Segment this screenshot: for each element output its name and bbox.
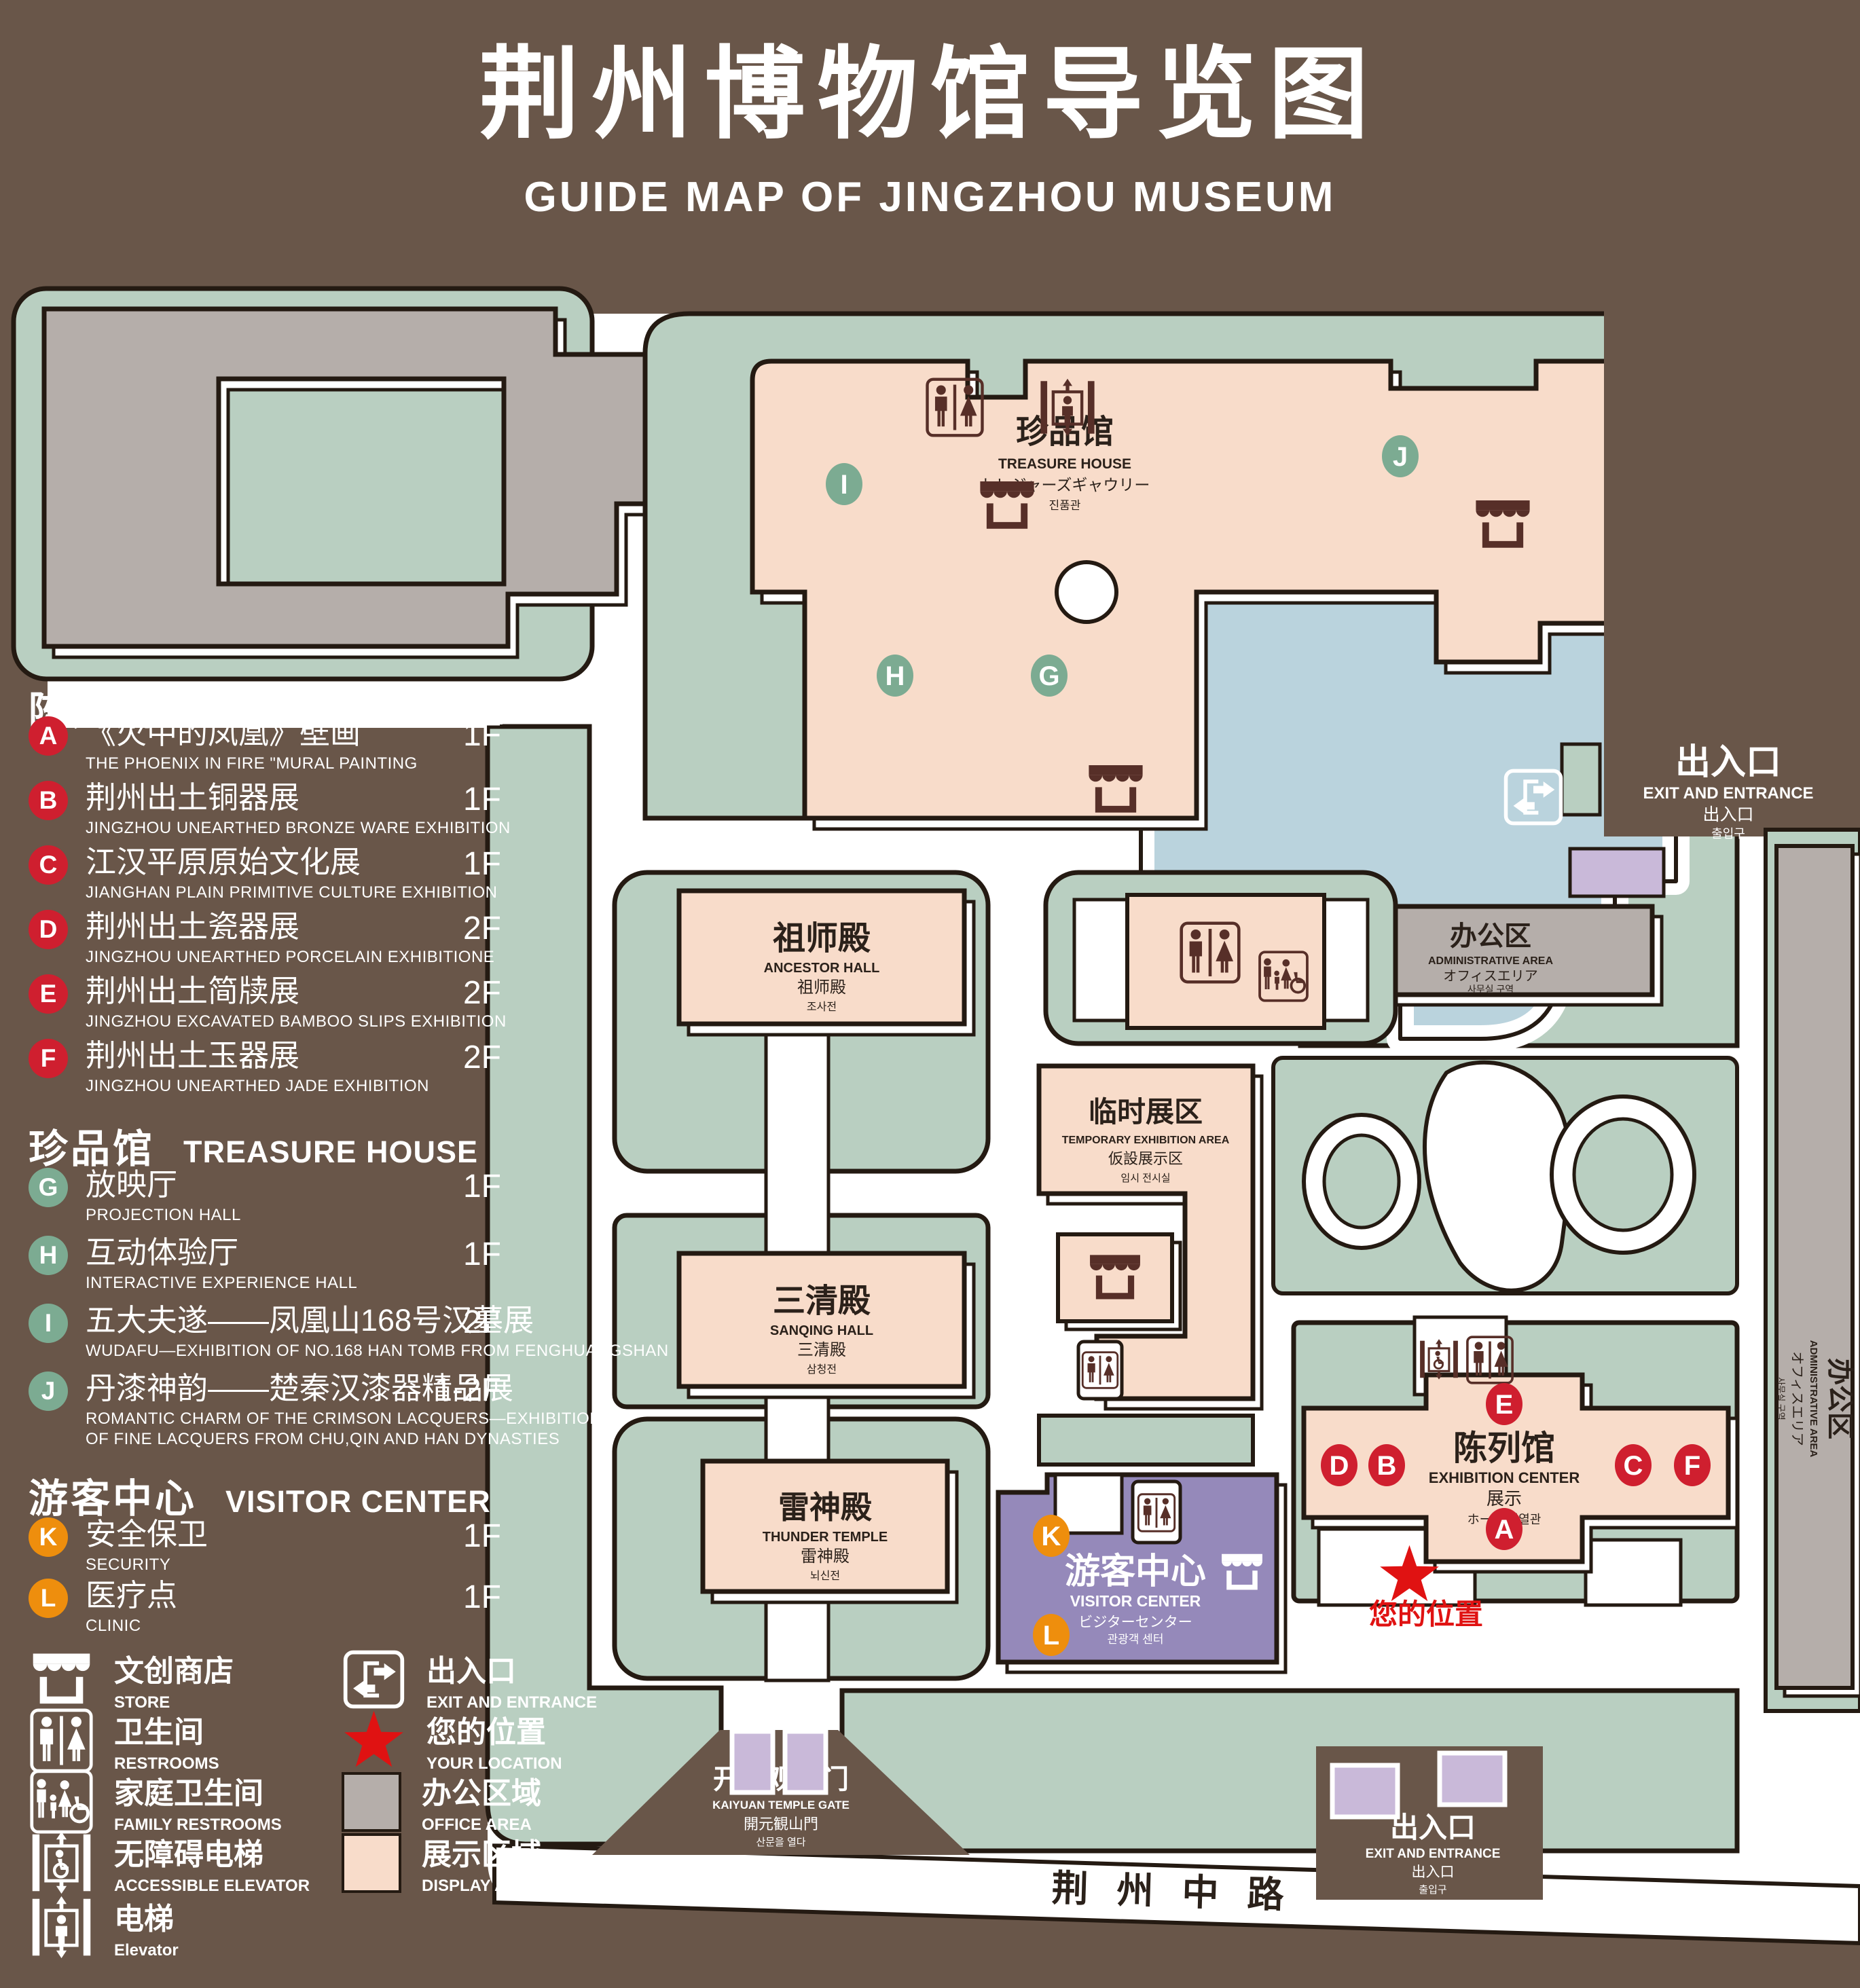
- item-title: 丹漆神韵——楚秦汉漆器精品展: [86, 1372, 432, 1405]
- legend-header-visitor: 游客中心 VISITOR CENTER: [29, 1467, 491, 1524]
- svg-text:산문을 열다: 산문을 열다: [756, 1837, 805, 1848]
- admin-mid-label-kr: 사무실 구역: [1467, 984, 1514, 995]
- exit-top-label-kr: 출입구: [1711, 827, 1745, 841]
- ancestor-hall: 祖师殿 ANCESTOR HALL 祖师殿 조사전: [679, 891, 974, 1035]
- restroom-pavilion: [1046, 872, 1396, 1044]
- item-title: 医疗点: [86, 1579, 432, 1613]
- display-area-swatch: [342, 1833, 401, 1893]
- symbol-label: 卫生间: [114, 1708, 219, 1751]
- legend-symbol-your-location: 您的位置 YOUR LOCATION: [342, 1708, 562, 1773]
- item-caption: JINGZHOU UNEARTHED JADE EXHIBITION: [86, 1077, 432, 1096]
- exit-top-label-zh: 出入口: [1675, 743, 1781, 782]
- svg-text:뇌신전: 뇌신전: [810, 1570, 840, 1582]
- exit-icon: [342, 1647, 406, 1712]
- legend-item-B: B 荆州出土铜器展 JINGZHOU UNEARTHED BRONZE WARE…: [29, 781, 513, 838]
- marker-D: D: [1321, 1444, 1357, 1486]
- legend-header-en: TREASURE HOUSE: [183, 1135, 478, 1170]
- exit-top-label-en: EXIT AND ENTRANCE: [1643, 784, 1813, 803]
- legend-header-treasure: 珍品馆 TREASURE HOUSE: [29, 1117, 478, 1174]
- item-caption: INTERACTIVE EXPERIENCE HALL: [86, 1274, 432, 1293]
- south-green-band: [842, 1691, 1737, 1851]
- marker-badge: I: [29, 1304, 68, 1343]
- svg-text:G: G: [1038, 661, 1059, 691]
- legend-item-J: J 丹漆神韵——楚秦汉漆器精品展 ROMANTIC CHARM OF THE C…: [29, 1372, 513, 1449]
- legend-item-G: G 放映厅 PROJECTION HALL 1F: [29, 1168, 513, 1225]
- svg-text:THUNDER TEMPLE: THUNDER TEMPLE: [763, 1530, 888, 1545]
- legend-symbol-elevator: 电梯 Elevator: [29, 1894, 179, 1960]
- symbol-label: 办公区域: [422, 1769, 541, 1812]
- legend-symbol-family-restrooms: 家庭卫生间 FAMILY RESTROOMS: [29, 1769, 282, 1835]
- item-title: 放映厅: [86, 1168, 432, 1202]
- marker-H: H: [877, 655, 913, 697]
- svg-text:임시 전시실: 임시 전시실: [1120, 1173, 1170, 1184]
- svg-text:祖师殿: 祖师殿: [797, 978, 846, 997]
- legend-symbol-store: 文创商店 STORE: [29, 1646, 234, 1712]
- legend-item-D: D 荆州出土瓷器展 JINGZHOU UNEARTHED PORCELAIN E…: [29, 910, 513, 967]
- item-caption: CLINIC: [86, 1617, 432, 1636]
- svg-text:TEMPORARY EXHIBITION AREA: TEMPORARY EXHIBITION AREA: [1062, 1135, 1230, 1146]
- item-floor: 2F: [463, 1304, 501, 1341]
- svg-text:開元観山門: 開元観山門: [744, 1816, 818, 1833]
- accessible-elevator-icon: [29, 1830, 94, 1895]
- symbol-label: 无障碍电梯: [114, 1830, 310, 1873]
- exit-bottom-gate: [1332, 1765, 1398, 1817]
- svg-text:出入口: 出入口: [1390, 1811, 1476, 1843]
- svg-text:ADMINISTRATIVE AREA: ADMINISTRATIVE AREA: [1808, 1340, 1819, 1458]
- item-floor: 1F: [463, 716, 501, 754]
- item-title: 五大夫遂——凤凰山168号汉墓展: [86, 1304, 432, 1338]
- svg-text:三清殿: 三清殿: [773, 1283, 871, 1319]
- guide-map-sign: 荆州博物馆导览图 GUIDE MAP OF JINGZHOU MUSEUM: [0, 0, 1860, 1988]
- item-caption: THE PHOENIX IN FIRE "MURAL PAINTING: [86, 754, 432, 773]
- store-icon: [29, 1647, 94, 1712]
- marker-L: L: [1033, 1614, 1070, 1656]
- visitor-center: 游客中心 VISITOR CENTER ビジターセンター 관광객 센터 K L: [998, 1475, 1285, 1672]
- exit-top-label-jp: 出入口: [1702, 805, 1753, 824]
- legend-item-A: A 《火中的凤凰》壁画 THE PHOENIX IN FIRE "MURAL P…: [29, 716, 513, 773]
- marker-badge: B: [29, 781, 68, 820]
- svg-text:F: F: [1684, 1451, 1700, 1481]
- symbol-caption: Elevator: [114, 1941, 179, 1960]
- svg-text:VISITOR CENTER: VISITOR CENTER: [1070, 1592, 1201, 1610]
- item-title: 荆州出土玉器展: [86, 1039, 432, 1073]
- marker-J: J: [1382, 435, 1419, 477]
- legend-item-K: K 安全保卫 SECURITY 1F: [29, 1517, 513, 1575]
- item-floor: 1F: [463, 1579, 501, 1616]
- svg-text:E: E: [1495, 1390, 1514, 1420]
- svg-text:游客中心: 游客中心: [1065, 1552, 1206, 1591]
- item-caption: WUDAFU—EXHIBITION OF NO.168 HAN TOMB FRO…: [86, 1342, 432, 1361]
- symbol-caption: ACCESSIBLE ELEVATOR: [114, 1877, 310, 1896]
- item-caption: PROJECTION HALL: [86, 1206, 432, 1225]
- legend-header-zh: 珍品馆: [29, 1117, 155, 1174]
- svg-text:ビジターセンター: ビジターセンター: [1078, 1615, 1192, 1630]
- gate-pillar: [732, 1731, 773, 1792]
- elevator-icon: [29, 1895, 94, 1959]
- item-floor: 1F: [463, 1236, 501, 1273]
- item-floor: 1F: [463, 781, 501, 818]
- svg-text:荆州中路: 荆州中路: [1051, 1868, 1313, 1916]
- legend-symbol-accessible-elevator: 无障碍电梯 ACCESSIBLE ELEVATOR: [29, 1830, 310, 1896]
- item-floor: 1F: [463, 1517, 501, 1555]
- exhibition-center: 陈列馆 EXHIBITION CENTER 展示 ホール 진열관 E D B C…: [1294, 1317, 1737, 1630]
- temporary-green: [1039, 1416, 1253, 1465]
- svg-text:展示: 展示: [1487, 1488, 1522, 1509]
- legend: 陈列馆 EXHIBITION CENTER A 《火中的凤凰》壁画 THE PH…: [19, 676, 523, 1986]
- svg-text:EXIT AND ENTRANCE: EXIT AND ENTRANCE: [1366, 1847, 1501, 1861]
- item-floor: 2F: [463, 1039, 501, 1076]
- svg-text:オフィスエリア: オフィスエリア: [1789, 1351, 1804, 1446]
- admin-mid-label-en: ADMINISTRATIVE AREA: [1428, 955, 1553, 967]
- svg-text:K: K: [1042, 1522, 1061, 1551]
- legend-item-E: E 荆州出土简牍展 JINGZHOU EXCAVATED BAMBOO SLIP…: [29, 974, 513, 1031]
- admin-right-building: [1776, 846, 1853, 1688]
- location-star-icon: [342, 1708, 406, 1773]
- marker-badge: F: [29, 1039, 68, 1078]
- item-caption: SECURITY: [86, 1556, 432, 1575]
- exit-bottom-gate: [1440, 1753, 1505, 1805]
- legend-symbol-office-area: 办公区域 OFFICE AREA: [342, 1769, 541, 1835]
- marker-badge: J: [29, 1372, 68, 1411]
- office-area-swatch: [342, 1772, 401, 1832]
- item-caption: JIANGHAN PLAIN PRIMITIVE CULTURE EXHIBIT…: [86, 883, 432, 902]
- treasure-label-en: TREASURE HOUSE: [998, 456, 1131, 472]
- legend-item-F: F 荆州出土玉器展 JINGZHOU UNEARTHED JADE EXHIBI…: [29, 1039, 513, 1096]
- symbol-label: 您的位置: [426, 1708, 562, 1751]
- marker-badge: A: [29, 716, 68, 756]
- svg-text:陈列馆: 陈列馆: [1453, 1429, 1555, 1467]
- symbol-label: 出入口: [426, 1646, 597, 1690]
- svg-text:办公区: 办公区: [1825, 1358, 1855, 1439]
- symbol-label: 展示区域: [422, 1830, 541, 1873]
- marker-E: E: [1486, 1383, 1522, 1425]
- legend-header-en: VISITOR CENTER: [225, 1484, 491, 1520]
- marker-badge: L: [29, 1579, 68, 1618]
- family-restrooms-icon: [29, 1769, 94, 1834]
- legend-symbol-exit: 出入口 EXIT AND ENTRANCE: [342, 1646, 597, 1712]
- sanqing-hall: 三清殿 SANQING HALL 三清殿 삼청전: [679, 1253, 974, 1397]
- symbol-label: 家庭卫生间: [114, 1769, 282, 1812]
- legend-item-I: I 五大夫遂——凤凰山168号汉墓展 WUDAFU—EXHIBITION OF …: [29, 1304, 513, 1361]
- marker-C: C: [1615, 1444, 1652, 1486]
- marker-badge: C: [29, 845, 68, 885]
- item-floor: 2F: [463, 974, 501, 1012]
- marker-B: B: [1368, 1444, 1405, 1486]
- garden-island-left: [1324, 1135, 1399, 1228]
- svg-text:삼청전: 삼청전: [807, 1363, 837, 1376]
- garden-island-right: [1574, 1119, 1672, 1230]
- item-caption-line2: OF FINE LACQUERS FROM CHU,QIN AND HAN DY…: [86, 1430, 432, 1449]
- item-title: 江汉平原原始文化展: [86, 845, 432, 879]
- item-caption: JINGZHOU UNEARTHED PORCELAIN EXHIBITIONE: [86, 948, 432, 967]
- treasure-label-kr: 진품관: [1049, 499, 1081, 512]
- legend-item-L: L 医疗点 CLINIC 1F: [29, 1579, 513, 1636]
- item-title: 《火中的凤凰》壁画: [86, 716, 432, 750]
- svg-text:KAIYUAN TEMPLE GATE: KAIYUAN TEMPLE GATE: [712, 1799, 850, 1811]
- svg-text:C: C: [1624, 1451, 1643, 1481]
- item-caption: JINGZHOU EXCAVATED BAMBOO SLIPS EXHIBITI…: [86, 1012, 432, 1031]
- marker-badge: D: [29, 910, 68, 949]
- symbol-caption: DISPLAY AREA: [422, 1877, 541, 1896]
- item-floor: 1F: [463, 845, 501, 883]
- svg-text:仮設展示区: 仮設展示区: [1108, 1150, 1183, 1167]
- item-floor: 1F: [463, 1168, 501, 1205]
- svg-text:I: I: [840, 470, 847, 500]
- svg-text:祖师殿: 祖师殿: [773, 921, 871, 957]
- exit-bottom-zone: 出入口 EXIT AND ENTRANCE 出入口 출입구: [1316, 1746, 1543, 1900]
- legend-item-H: H 互动体验厅 INTERACTIVE EXPERIENCE HALL 1F: [29, 1236, 513, 1293]
- symbol-label: 电梯: [114, 1894, 179, 1938]
- svg-text:三清殿: 三清殿: [797, 1341, 846, 1359]
- svg-text:A: A: [1495, 1515, 1514, 1545]
- svg-text:SANQING HALL: SANQING HALL: [770, 1323, 873, 1338]
- restrooms-icon: [29, 1708, 94, 1773]
- svg-text:B: B: [1377, 1451, 1397, 1481]
- svg-text:雷神殿: 雷神殿: [778, 1490, 872, 1525]
- gate-pillar: [785, 1731, 826, 1792]
- item-caption: JINGZHOU UNEARTHED BRONZE WARE EXHIBITIO…: [86, 819, 432, 838]
- marker-badge: H: [29, 1236, 68, 1275]
- svg-text:사무실 구역: 사무실 구역: [1776, 1377, 1786, 1420]
- item-title: 安全保卫: [86, 1517, 432, 1551]
- svg-text:H: H: [886, 661, 905, 691]
- marker-F: F: [1674, 1444, 1711, 1486]
- symbol-label: 文创商店: [114, 1646, 234, 1690]
- marker-I: I: [826, 463, 862, 505]
- marker-G: G: [1031, 655, 1068, 697]
- svg-text:J: J: [1393, 442, 1408, 472]
- admin-mid-label-zh: 办公区: [1450, 921, 1531, 951]
- thunder-temple: 雷神殿 THUNDER TEMPLE 雷神殿 뇌신전: [703, 1461, 957, 1602]
- legend-symbol-restrooms: 卫生间 RESTROOMS: [29, 1708, 219, 1773]
- road-label: 荆州中路: [1051, 1868, 1313, 1916]
- svg-text:临时展区: 临时展区: [1089, 1096, 1203, 1128]
- marker-K: K: [1033, 1515, 1070, 1557]
- item-caption: ROMANTIC CHARM OF THE CRIMSON LACQUERS—E…: [86, 1410, 432, 1429]
- marker-badge: G: [29, 1168, 68, 1207]
- your-location-label: 您的位置: [1369, 1598, 1483, 1630]
- marker-badge: E: [29, 974, 68, 1014]
- marker-A: A: [1486, 1508, 1522, 1550]
- marker-badge: K: [29, 1517, 68, 1557]
- legend-header-zh: 游客中心: [29, 1467, 197, 1524]
- item-title: 互动体验厅: [86, 1236, 432, 1270]
- item-title: 荆州出土简牍展: [86, 974, 432, 1008]
- svg-text:出入口: 出入口: [1412, 1864, 1455, 1880]
- item-title: 荆州出土瓷器展: [86, 910, 432, 944]
- svg-text:D: D: [1330, 1451, 1349, 1481]
- item-title: 荆州出土铜器展: [86, 781, 432, 815]
- svg-text:관광객 센터: 관광객 센터: [1108, 1633, 1164, 1646]
- svg-text:EXHIBITION CENTER: EXHIBITION CENTER: [1429, 1469, 1580, 1486]
- exit-top-green: [1562, 744, 1600, 815]
- legend-symbol-display-area: 展示区域 DISPLAY AREA: [342, 1830, 541, 1896]
- treasure-courtyard-notch: [1057, 562, 1116, 622]
- admin-mid-label-jp: オフィスエリア: [1443, 969, 1538, 984]
- svg-text:조사전: 조사전: [807, 1001, 837, 1013]
- svg-text:雷神殿: 雷神殿: [801, 1547, 850, 1566]
- svg-text:ANCESTOR HALL: ANCESTOR HALL: [764, 961, 880, 976]
- exit-top-gate: [1570, 849, 1664, 896]
- item-floor: 1-2F: [434, 1372, 501, 1409]
- item-floor: 2F: [463, 910, 501, 947]
- legend-item-C: C 江汉平原原始文化展 JIANGHAN PLAIN PRIMITIVE CUL…: [29, 845, 513, 902]
- svg-text:L: L: [1043, 1621, 1059, 1651]
- svg-text:출입구: 출입구: [1419, 1884, 1446, 1896]
